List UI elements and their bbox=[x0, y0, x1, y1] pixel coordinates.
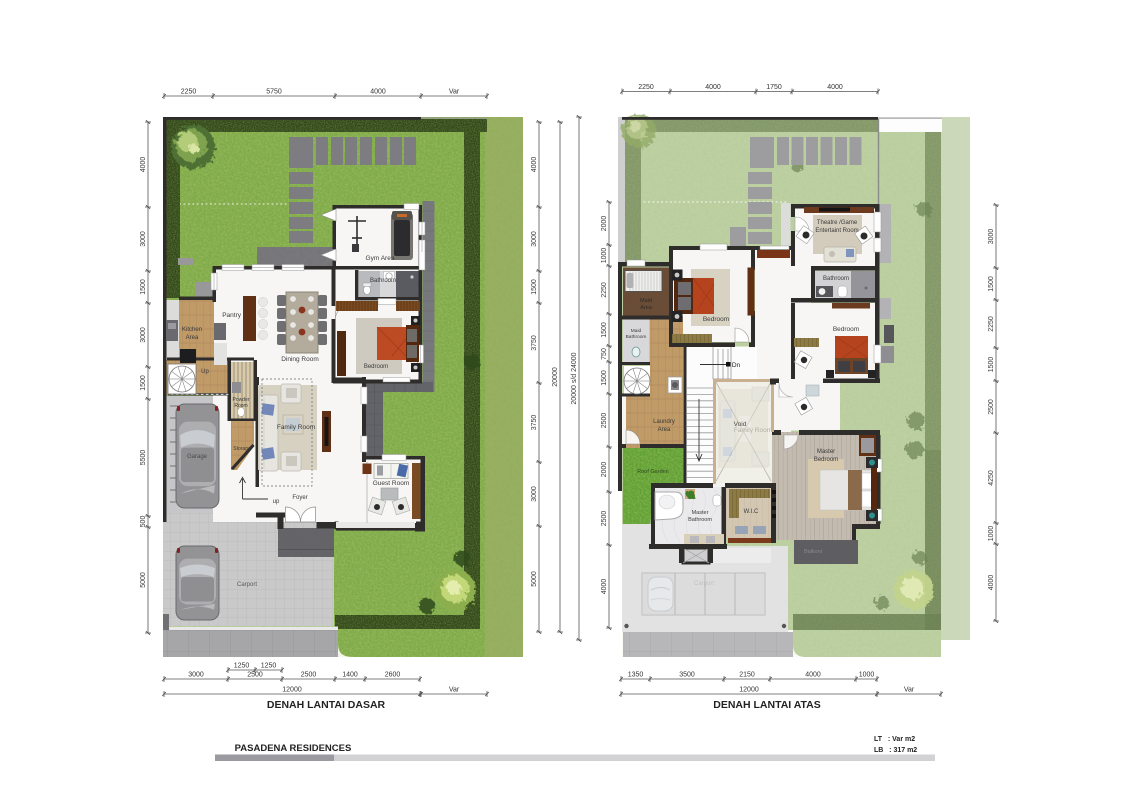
svg-text:4000: 4000 bbox=[827, 84, 843, 91]
svg-text:Bedroom: Bedroom bbox=[703, 316, 729, 323]
svg-text:Bedroom: Bedroom bbox=[814, 457, 838, 463]
svg-text:1250: 1250 bbox=[234, 663, 250, 670]
svg-text:20000 s/d 24000: 20000 s/d 24000 bbox=[571, 352, 578, 404]
svg-text:Family Room: Family Room bbox=[734, 427, 772, 434]
svg-text:2250: 2250 bbox=[181, 89, 197, 96]
svg-text:Foyer: Foyer bbox=[292, 495, 307, 501]
svg-text:Bathroom: Bathroom bbox=[823, 276, 849, 282]
svg-text:DENAH LANTAI ATAS: DENAH LANTAI ATAS bbox=[713, 699, 821, 711]
svg-text:2250: 2250 bbox=[601, 282, 608, 298]
svg-text:20000: 20000 bbox=[552, 367, 559, 387]
svg-text:2000: 2000 bbox=[601, 462, 608, 478]
svg-text:3000: 3000 bbox=[140, 231, 147, 247]
svg-text:1500: 1500 bbox=[140, 279, 147, 295]
svg-text:3000: 3000 bbox=[988, 229, 995, 245]
svg-text:1250: 1250 bbox=[261, 663, 277, 670]
svg-text:5000: 5000 bbox=[531, 571, 538, 587]
svg-text:3750: 3750 bbox=[531, 335, 538, 351]
svg-text:Var: Var bbox=[449, 687, 460, 694]
svg-text:Bathroom: Bathroom bbox=[370, 278, 396, 284]
svg-text:Carport: Carport bbox=[694, 581, 714, 587]
svg-text:12000: 12000 bbox=[282, 687, 302, 694]
svg-text:Var: Var bbox=[449, 89, 460, 96]
svg-text:Pantry: Pantry bbox=[222, 312, 242, 319]
svg-text:Dn: Dn bbox=[732, 362, 741, 369]
svg-text:2250: 2250 bbox=[988, 316, 995, 332]
svg-text:3000: 3000 bbox=[531, 231, 538, 247]
svg-text:2500: 2500 bbox=[988, 399, 995, 415]
svg-text:2600: 2600 bbox=[385, 672, 401, 679]
svg-text:W.I.C: W.I.C bbox=[744, 509, 759, 515]
svg-text:4000: 4000 bbox=[601, 579, 608, 595]
svg-text:2250: 2250 bbox=[638, 84, 654, 91]
svg-text:1400: 1400 bbox=[342, 672, 358, 679]
svg-text:5750: 5750 bbox=[266, 89, 282, 96]
svg-text:Master: Master bbox=[817, 449, 835, 455]
svg-text:1000: 1000 bbox=[859, 672, 875, 679]
svg-text:Bathroom: Bathroom bbox=[688, 517, 712, 523]
svg-text:Entertaint Room: Entertaint Room bbox=[815, 228, 858, 234]
svg-text:Maid: Maid bbox=[631, 328, 642, 334]
svg-text:1500: 1500 bbox=[988, 357, 995, 373]
svg-text:3000: 3000 bbox=[140, 327, 147, 343]
svg-text:1350: 1350 bbox=[628, 672, 644, 679]
svg-text:Bathroom: Bathroom bbox=[626, 334, 647, 340]
svg-text:Laundry: Laundry bbox=[653, 419, 675, 425]
svg-text:LB : 317 m2: LB : 317 m2 bbox=[874, 747, 917, 754]
svg-text:Carport: Carport bbox=[237, 582, 257, 588]
svg-text:Dining Room: Dining Room bbox=[281, 356, 319, 363]
svg-text:Master: Master bbox=[692, 510, 709, 516]
svg-text:1500: 1500 bbox=[988, 276, 995, 292]
svg-text:Bedroom: Bedroom bbox=[364, 364, 388, 370]
svg-text:5000: 5000 bbox=[140, 572, 147, 588]
svg-text:1000: 1000 bbox=[601, 248, 608, 264]
svg-text:5500: 5500 bbox=[140, 450, 147, 466]
svg-text:Storage: Storage bbox=[233, 446, 251, 452]
svg-text:Theatre /Game: Theatre /Game bbox=[817, 220, 858, 226]
svg-text:Area: Area bbox=[640, 305, 653, 311]
svg-text:1500: 1500 bbox=[140, 375, 147, 391]
svg-text:1500: 1500 bbox=[531, 279, 538, 295]
svg-text:2500: 2500 bbox=[601, 511, 608, 527]
svg-text:Area: Area bbox=[186, 335, 199, 341]
svg-text:4000: 4000 bbox=[705, 84, 721, 91]
svg-text:Guest Room: Guest Room bbox=[373, 480, 410, 487]
svg-text:Kitchen: Kitchen bbox=[182, 327, 202, 333]
svg-text:Maid: Maid bbox=[640, 298, 652, 304]
svg-text:Gym Area: Gym Area bbox=[366, 255, 395, 262]
svg-text:1000: 1000 bbox=[988, 526, 995, 542]
svg-text:500: 500 bbox=[140, 516, 147, 528]
svg-text:Garage: Garage bbox=[187, 454, 208, 460]
svg-text:3750: 3750 bbox=[531, 415, 538, 431]
svg-text:Balkoni: Balkoni bbox=[804, 549, 822, 555]
svg-text:2150: 2150 bbox=[739, 672, 755, 679]
svg-text:2500: 2500 bbox=[301, 672, 317, 679]
svg-text:4000: 4000 bbox=[370, 89, 386, 96]
svg-text:4000: 4000 bbox=[531, 157, 538, 173]
svg-text:3000: 3000 bbox=[188, 672, 204, 679]
svg-text:Var: Var bbox=[904, 687, 915, 694]
svg-text:4000: 4000 bbox=[140, 157, 147, 173]
svg-text:Area: Area bbox=[658, 427, 671, 433]
svg-text:4250: 4250 bbox=[988, 470, 995, 486]
svg-text:12000: 12000 bbox=[739, 687, 759, 694]
svg-text:LT : Var m2: LT : Var m2 bbox=[874, 736, 915, 743]
svg-text:3500: 3500 bbox=[679, 672, 695, 679]
svg-text:1500: 1500 bbox=[601, 322, 608, 338]
svg-text:Family Room: Family Room bbox=[277, 424, 315, 431]
svg-text:Up: Up bbox=[201, 369, 209, 375]
svg-text:Roof Garden: Roof Garden bbox=[637, 469, 669, 475]
svg-text:750: 750 bbox=[601, 348, 608, 360]
svg-text:3000: 3000 bbox=[531, 486, 538, 502]
svg-text:2000: 2000 bbox=[601, 216, 608, 232]
svg-text:1500: 1500 bbox=[601, 370, 608, 386]
svg-text:2500: 2500 bbox=[601, 413, 608, 429]
svg-text:1750: 1750 bbox=[766, 84, 782, 91]
svg-text:Room: Room bbox=[234, 403, 247, 409]
svg-text:4000: 4000 bbox=[805, 672, 821, 679]
svg-text:PASADENA RESIDENCES: PASADENA RESIDENCES bbox=[235, 743, 352, 754]
svg-text:up: up bbox=[273, 499, 280, 505]
svg-text:4000: 4000 bbox=[988, 575, 995, 591]
svg-text:DENAH LANTAI DASAR: DENAH LANTAI DASAR bbox=[267, 699, 386, 711]
svg-text:Bedroom: Bedroom bbox=[833, 326, 859, 333]
